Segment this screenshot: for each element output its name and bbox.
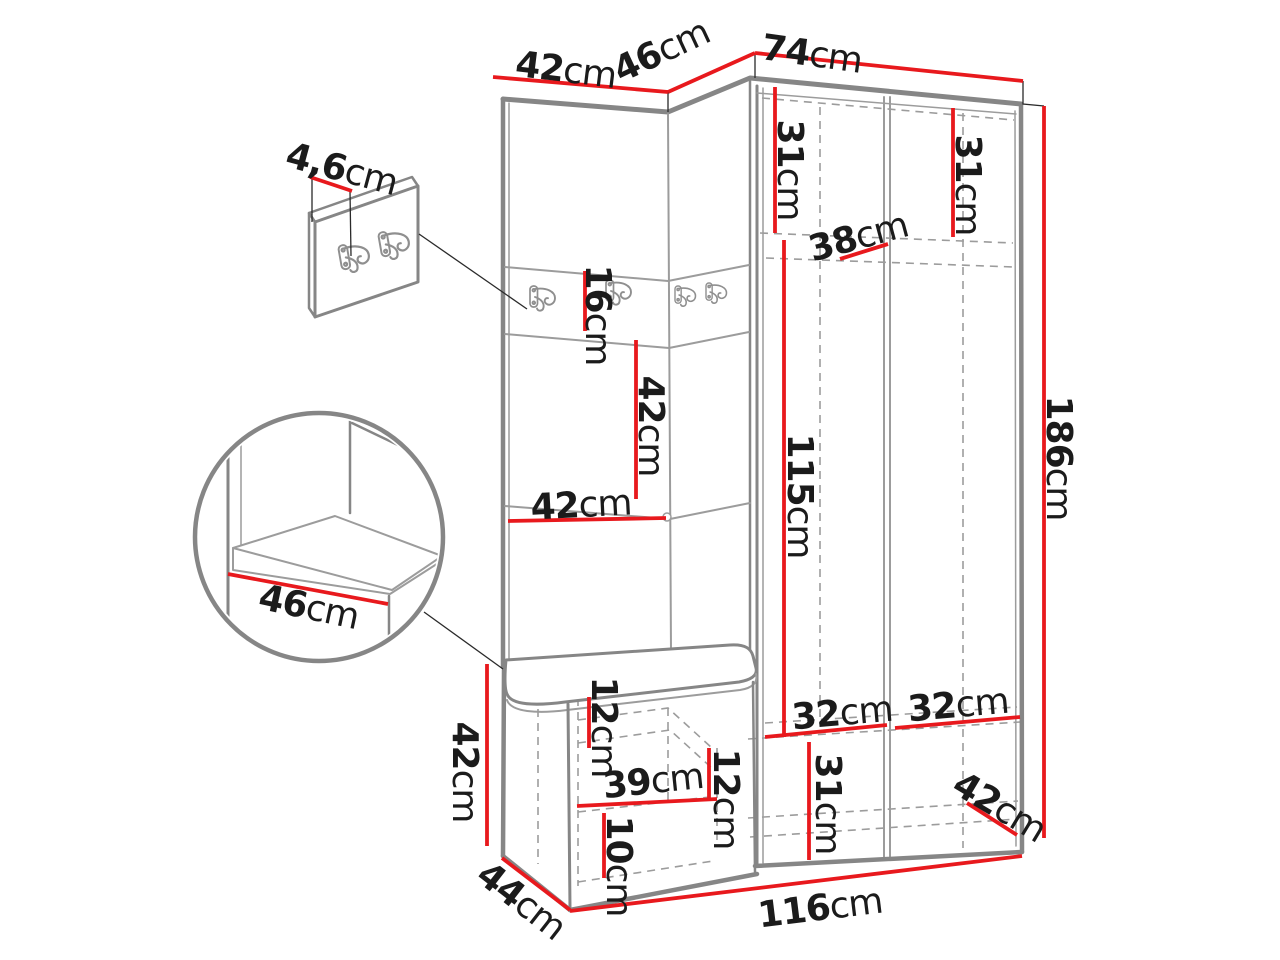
dim-unit: cm [705,797,746,850]
dim-label-hook-strip-height: 16cm [577,265,618,366]
dim-unit: cm [577,313,618,366]
diagram-canvas: 42cm 46cm 74cm 4,6cm 31cm 31cm 38cm 16cm… [0,0,1280,960]
dim-label-wardrobe-depth: 42cm [945,764,1053,851]
bench-front-left-edge [568,704,570,908]
dim-label-mid-panel-width: 42cm [530,482,633,528]
coat-hook-icon [706,283,727,303]
dim-value: 42 [513,44,566,91]
dim-label-right-shelf-width: 32cm [906,681,1010,731]
dim-unit: cm [807,802,848,855]
main-hook-strip [530,280,727,311]
dim-label-total-height: 186cm [1038,395,1079,520]
dim-unit: cm [578,482,633,526]
dim-value: 42 [630,376,671,424]
dim-value: 16 [577,265,618,313]
dim-label-bench-mid-gap: 12cm [705,749,746,850]
dim-unit: cm [827,881,884,928]
right-inner-edge [1015,111,1016,846]
dim-value: 4,6 [281,135,350,190]
dim-unit: cm [444,770,485,823]
coat-hook-icon [675,286,696,306]
hook-strip-top-seam [505,265,749,281]
dim-unit: cm [954,681,1010,726]
dim-label-right-upper-section: 31cm [947,135,988,236]
dim-label-top-left-width: 42cm [513,44,618,97]
dim-value: 186 [1038,395,1079,467]
bench-cushion-top [505,645,756,704]
dim-value: 10 [598,816,639,864]
dim-unit: cm [649,756,706,802]
coat-hook-icon [530,286,555,311]
dim-label-bench-height: 42cm [444,722,485,823]
dim-value: 32 [790,693,841,738]
dim-value: 12 [705,749,746,797]
dim-unit: cm [851,205,913,258]
bench-left-edge [503,670,504,856]
dim-value: 116 [756,887,833,936]
dim-label-top-right-width: 74cm [759,27,865,82]
dim-label-bottom-section: 31cm [807,754,848,855]
dim-label-bench-top-gap: 12cm [583,677,624,778]
right-outer-edge [1021,104,1022,852]
wardrobe-outline [503,78,1022,866]
dim-unit: cm [1038,468,1079,521]
furniture-dimension-diagram: 42cm 46cm 74cm 4,6cm 31cm 31cm 38cm 16cm… [0,0,1280,960]
wardrobe-top-inner-edge [757,93,1016,114]
dim-unit: cm [769,168,810,221]
dim-unit: cm [947,183,988,236]
dim-value: 31 [769,120,810,168]
dim-value: 31 [947,135,988,183]
dim-label-total-width: 116cm [756,881,885,937]
dim-label-hanging-height: 115cm [779,433,820,558]
dim-value: 42 [444,722,485,770]
dim-label-bench-bottom-gap: 10cm [598,816,639,917]
dim-unit: cm [838,689,894,734]
dim-value: 42 [530,485,580,528]
hook-strip-bottom-seam [505,332,749,348]
circle-inset-leader-line [424,612,503,669]
dim-unit: cm [779,506,820,559]
dim-unit: cm [340,151,402,204]
dim-unit: cm [598,864,639,917]
dim-label-left-upper-section: 31cm [769,120,810,221]
bench-right-edge [753,682,755,872]
dim-value: 31 [807,754,848,802]
dim-label-left-shelf-width: 32cm [790,689,894,739]
dim-label-mid-panel-height: 42cm [630,376,671,477]
dim-value: 74 [759,27,812,74]
dim-unit: cm [630,424,671,477]
panel-inset-leader-line [419,234,527,309]
dim-label-upper-shelf-depth: 38cm [804,205,912,271]
dim-value: 12 [583,677,624,725]
dim-label-panel-thickness: 4,6cm [281,135,401,204]
dim-value: 32 [906,685,957,730]
hook-panel-inset [309,177,418,317]
dim-value: 39 [601,761,653,807]
dim-value: 115 [779,433,820,505]
dim-unit: cm [807,34,865,82]
extension-top-right [1023,81,1044,106]
